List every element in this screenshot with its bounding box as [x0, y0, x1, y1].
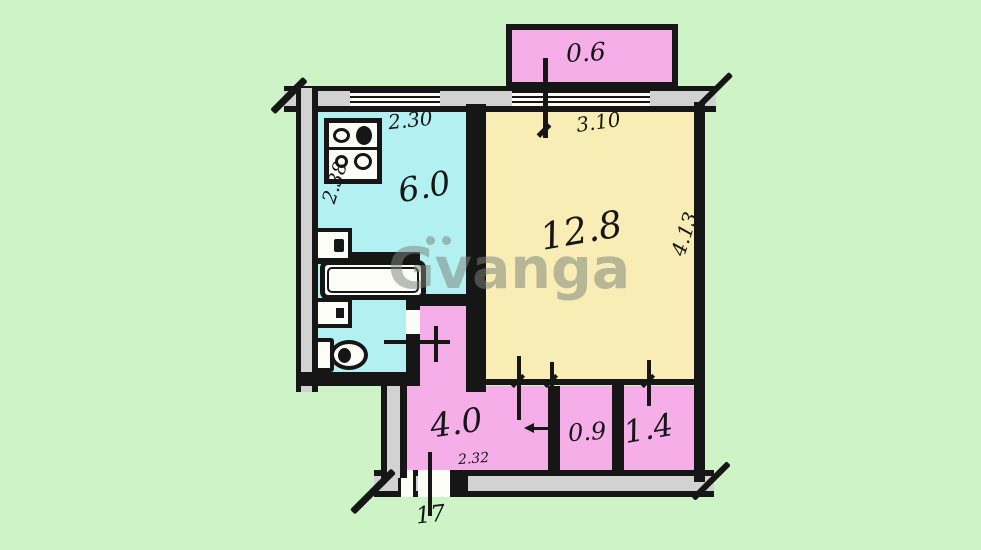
kitchen-area-label: 6.0: [396, 166, 453, 208]
kitchen-width-label: 2.30: [387, 108, 433, 133]
room-window: [512, 91, 650, 106]
toilet-icon: [314, 336, 368, 374]
kitchen-sink-icon: [314, 228, 352, 262]
watermark-dot-icon: [426, 236, 435, 245]
closet-area-label: 1.4: [622, 410, 676, 449]
dim-line-bath-door: [384, 340, 450, 344]
entry-door-gap-2: [418, 470, 452, 497]
washbasin-icon: [314, 298, 352, 328]
wall-bath-bottom: [300, 372, 420, 386]
bath-door-gap: [406, 310, 420, 334]
wc-area-label: 0.9: [567, 419, 607, 446]
hallway-arm: [420, 306, 466, 388]
bottom-exterior-wall: [374, 470, 714, 497]
hall-width-label: 2.32: [458, 451, 490, 467]
right-exterior-wall: [694, 102, 705, 482]
dim-line-room-left: [517, 356, 521, 420]
watermark-dot-icon: [442, 236, 451, 245]
dim-line-hall-arm: [434, 326, 438, 362]
hall-area-label: 4.0: [428, 403, 485, 443]
kitchen-window: [350, 91, 440, 106]
top-exterior-wall: [284, 86, 716, 112]
dim-arrowhead-wc: [524, 423, 534, 433]
hall-left-wall: [381, 384, 407, 478]
room-width-label: 3.10: [575, 109, 622, 135]
door-jamb: [452, 470, 468, 492]
floor-plan: Gvanga 0.6 2.30 6.0 2.38 3.10 12.8 4.13 …: [0, 0, 981, 550]
dim-arrow-line-wc: [532, 427, 552, 430]
balcony-area-label: 0.6: [565, 39, 606, 66]
entry-width-label: 17: [415, 503, 447, 529]
